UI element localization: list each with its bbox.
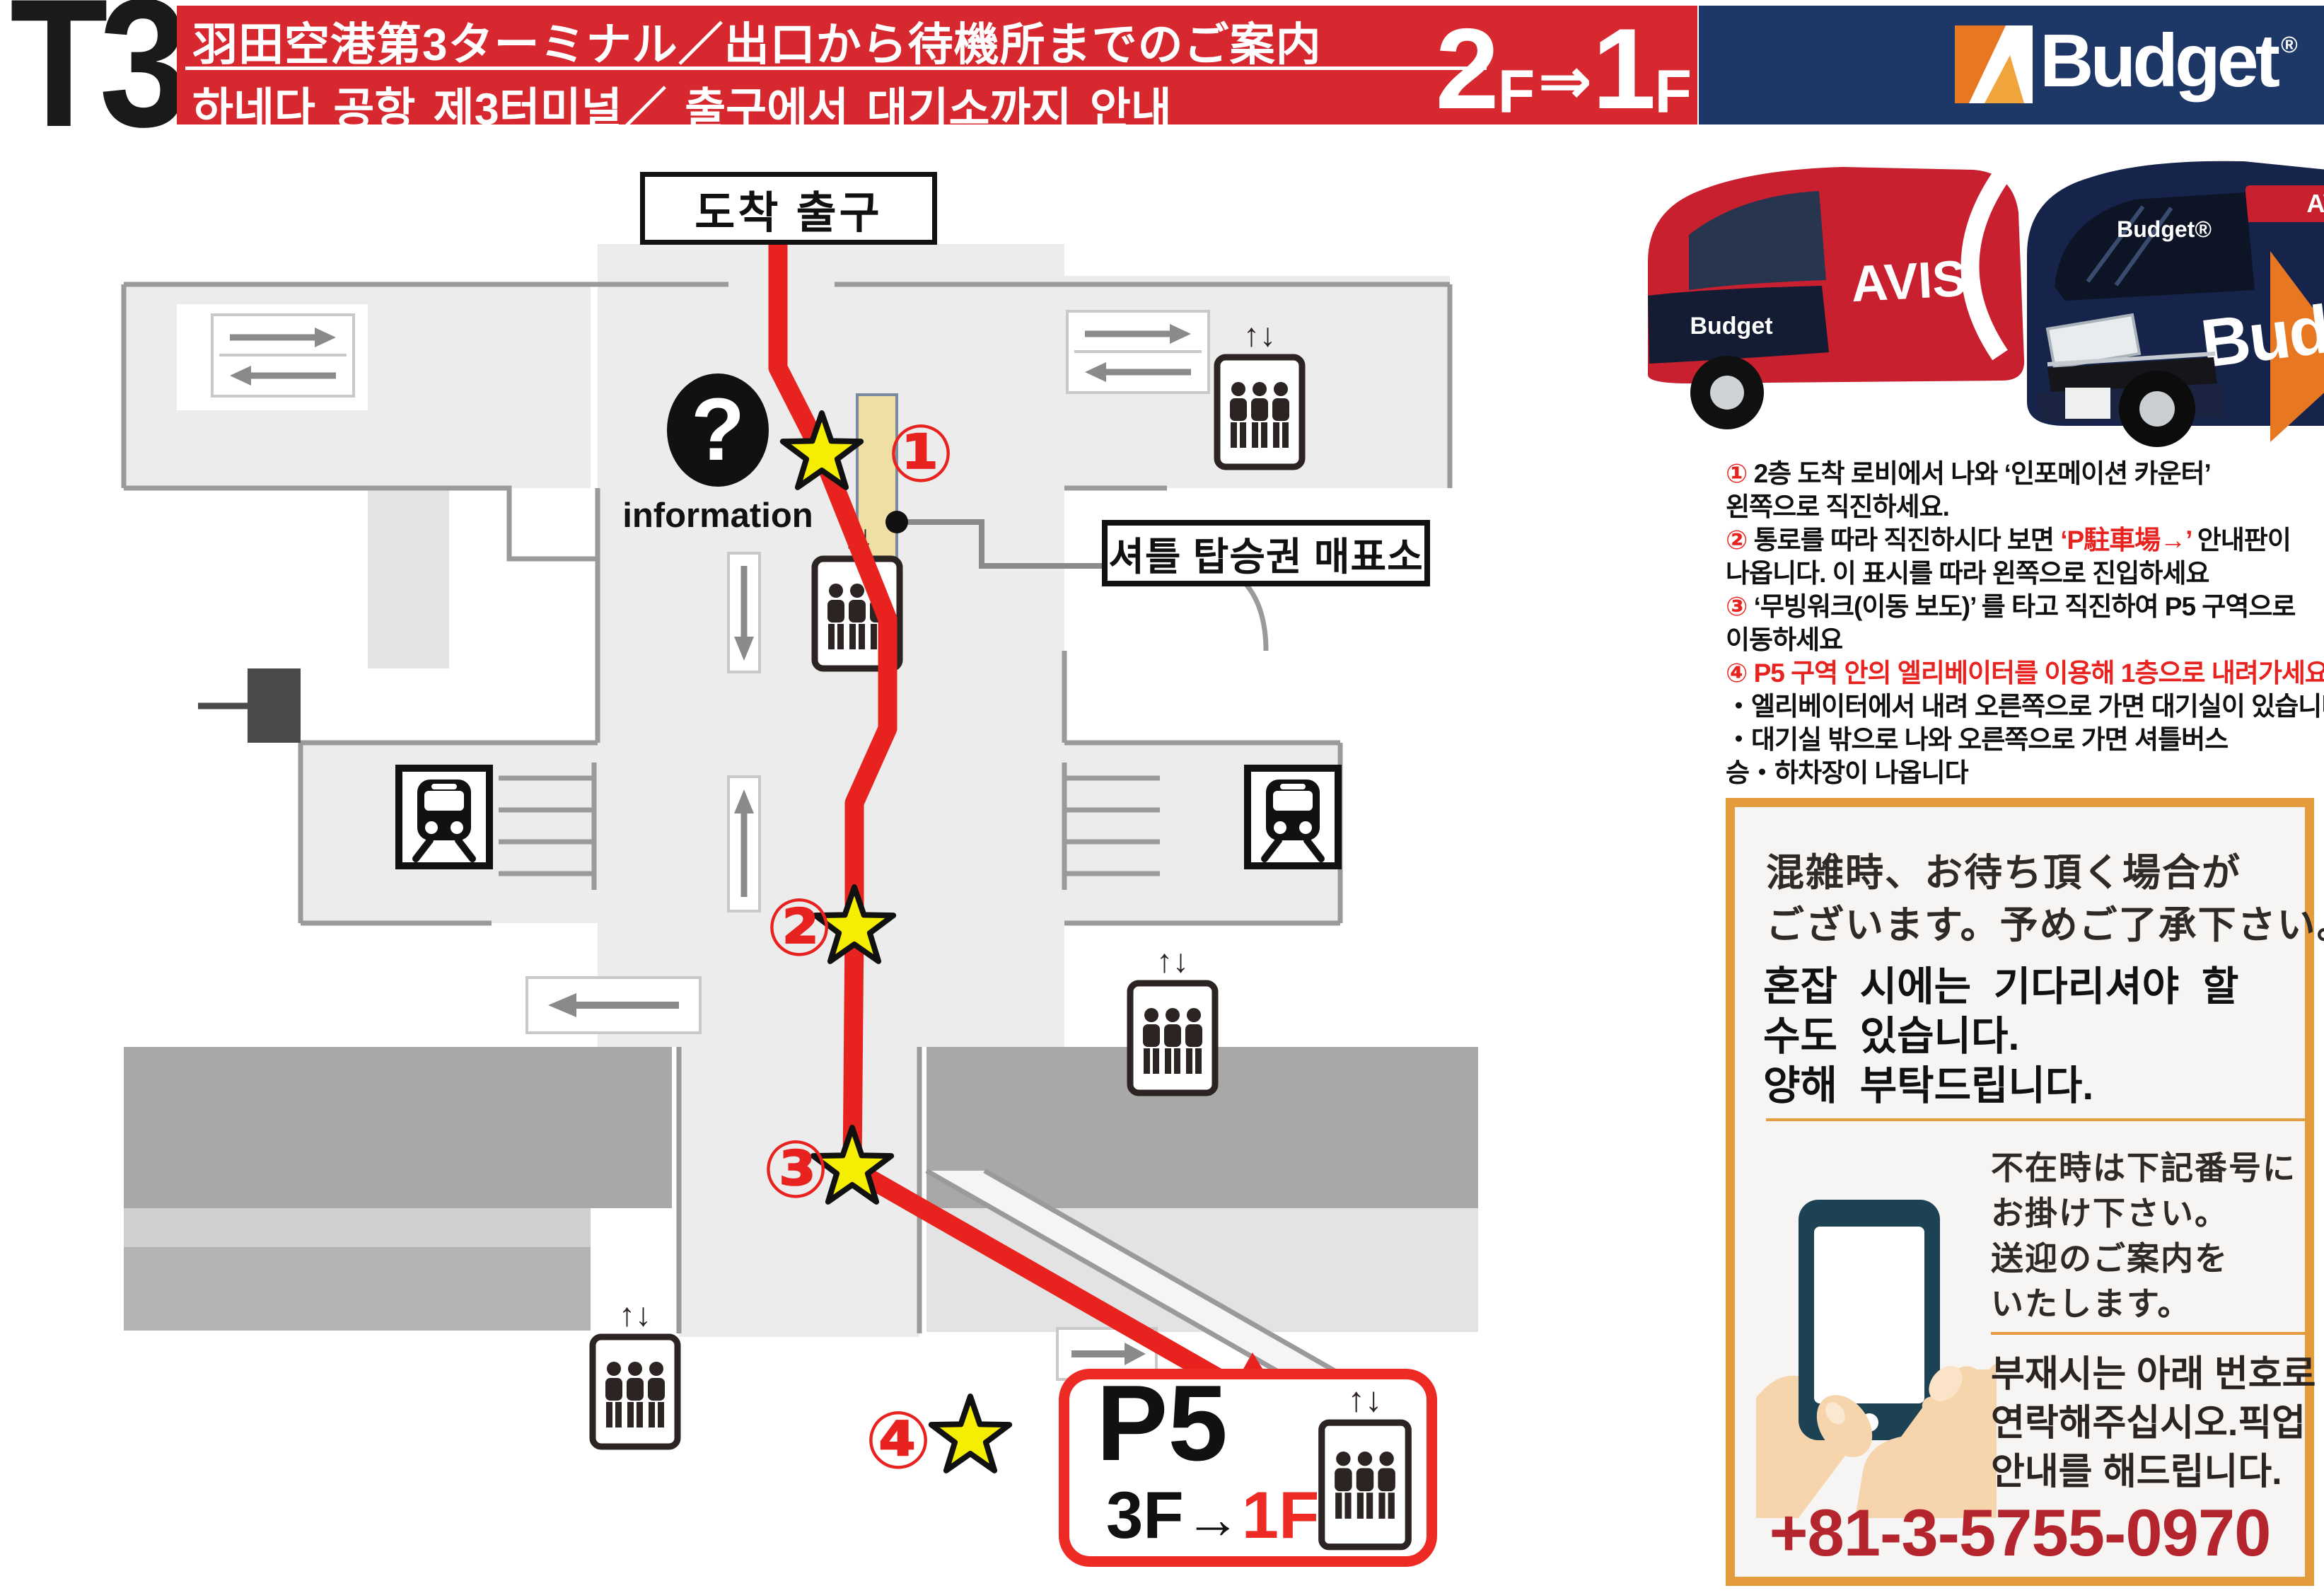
guide-poster: T3 羽田空港第3ターミナル／出口から待機所までのご案内 하네다 공항 제3터미… (0, 0, 2324, 1593)
contact-ja-line-4: いたします。 (1991, 1281, 2296, 1326)
step-2-text-b: 안내판이 (2191, 526, 2290, 555)
budget-van-glass-label: Budget® (2117, 216, 2212, 242)
shuttle-ticket-office-text: 셔틀 탑승권 매표소 (1108, 525, 1423, 581)
instruction-note-2: ・대기실 밖으로 나와 오른쪽으로 가면 셔틀버스 (1726, 723, 2320, 756)
step-3-text: ‘무빙워크(이동 보도)’ 를 타고 직진하여 P5 구역으로 (1747, 592, 2295, 621)
elevator-arrows-icon: ↑↓ (619, 1296, 651, 1333)
elevator-arrows-icon: ↑↓ (1156, 942, 1189, 979)
contact-ja-line-2: お掛け下さい。 (1991, 1191, 2296, 1236)
question-mark-icon: ? (691, 381, 745, 479)
elevator-arrows-icon: ↑↓ (1243, 316, 1276, 353)
divider (1766, 1118, 2308, 1121)
elevator-icon: ↑↓ (593, 1296, 678, 1447)
information-label: information (622, 497, 813, 535)
title-banner: 羽田空港第3ターミナル／出口から待機所までのご案内 하네다 공항 제3터미널／ … (177, 6, 1697, 124)
brand-name-text: Budget (2040, 19, 2277, 103)
step-4-number: ④ (1726, 659, 1747, 688)
instruction-note-2b: 승・하차장이 나옵니다 (1726, 756, 2320, 789)
brand-banner: Budget® (1699, 6, 2324, 124)
notice-japanese-2: ございます。予めご了承下さい。 (1766, 893, 2324, 949)
p5-floor-arrow-icon: → (1185, 1487, 1241, 1551)
instruction-step-1b: 왼쪽으로 직진하세요. (1726, 490, 2320, 523)
left-arrow-sign (527, 978, 700, 1033)
divider (1991, 1332, 2309, 1335)
floor-to-number: 1 (1592, 16, 1656, 122)
arrival-exit-text: 도착 출구 (695, 177, 882, 241)
instruction-step-1: ① 2층 도착 로비에서 나와 ‘인포메이션 카운터’ (1726, 457, 2320, 490)
contact-ja-line-1: 不在時は下記番号に (1991, 1145, 2296, 1191)
floor-from-number: 2 (1436, 16, 1499, 122)
down-arrow-sign (728, 553, 760, 672)
star-icon (931, 1396, 1009, 1471)
step-3-number: ③ (1726, 592, 1747, 621)
elevator-icon: ↑↓ (1130, 942, 1215, 1093)
avis-van-label: AVIS (1849, 250, 1968, 313)
two-way-arrow-sign (1067, 311, 1209, 393)
contact-ko-line-3: 안내를 해드립니다. (1991, 1448, 2316, 1497)
budget-van: AVIS Budget® Budget (2027, 161, 2324, 447)
step-marker-2: ② (766, 884, 833, 972)
brand-name: Budget® (2040, 18, 2298, 104)
contact-korean: 부재시는 아래 번호로 연락해주십시오.픽업 안내를 해드립니다. (1991, 1350, 2316, 1497)
instruction-step-3b: 이동하세요 (1726, 623, 2320, 656)
elevator-arrows-icon: ↑↓ (1348, 1382, 1383, 1419)
floor-arrow-icon: ⇒ (1538, 52, 1592, 112)
monorail-icon (399, 768, 489, 866)
instruction-step-2: ② 통로를 따라 직진하시다 보면 ‘P駐車場→’ 안내판이 (1726, 523, 2320, 557)
p5-destination-box: P5 3F → 1F ↑↓ (1059, 1369, 1437, 1567)
notice-box: 混雑時、お待ち頂く場合が ございます。予めご了承下さい。 혼잡 시에는 기다리셔… (1726, 798, 2314, 1586)
phone-hand-illustration (1756, 1193, 1997, 1518)
step-2-parking-sign: ‘P駐車場→’ (2060, 526, 2191, 555)
step-1-text: 2층 도착 로비에서 나와 ‘인포메이션 카운터’ (1747, 459, 2211, 488)
avis-van-front-label: Budget (1690, 313, 1772, 340)
instruction-note-1: ・엘리베이터에서 내려 오른쪽으로 가면 대기실이 있습니다 (1726, 690, 2320, 723)
step-2-text-a: 통로를 따라 직진하시다 보면 (1747, 526, 2060, 555)
elevator-icon: ↑↓ (1312, 1382, 1418, 1556)
title-korean: 하네다 공항 제3터미널／ 출구에서 대기소까지 안내 (192, 74, 1172, 138)
wall-fixture (198, 668, 301, 743)
registered-mark: ® (2281, 32, 2298, 57)
terminal-code: T3 (10, 0, 180, 154)
step-2-number: ② (1726, 526, 1747, 555)
p5-title: P5 (1096, 1369, 1228, 1477)
step-marker-1: ① (888, 410, 955, 498)
p5-floor-from: 3F (1106, 1477, 1184, 1553)
title-japanese: 羽田空港第3ターミナル／出口から待機所までのご案内 (192, 8, 1322, 74)
two-way-arrow-sign (212, 315, 354, 396)
arrival-exit-label: 도착 출구 (640, 172, 937, 245)
up-arrow-sign (728, 777, 760, 911)
p5-floor-to: 1F (1242, 1477, 1320, 1553)
instruction-step-4: ④ P5 구역 안의 엘리베이터를 이용해 1층으로 내려가세요 (1726, 656, 2320, 690)
title-underline (185, 66, 1487, 70)
avis-van: AVIS Budget (1648, 167, 2024, 429)
notice-korean-3: 양해 부탁드립니다. (1763, 1053, 2093, 1111)
contact-ko-line-1: 부재시는 아래 번호로 (1991, 1350, 2316, 1399)
step-marker-3: ③ (762, 1125, 830, 1214)
floor-from-letter: F (1498, 64, 1535, 120)
floor-to-letter: F (1654, 64, 1692, 120)
budget-logo-icon (1955, 25, 2033, 103)
step-marker-4: ④ (865, 1396, 932, 1485)
shuttle-vans-photo: AVIS Budget AVIS Budget® Budget (1605, 120, 2324, 460)
phone-number: +81-3-5755-0970 (1735, 1495, 2305, 1571)
budget-van-top-label: AVIS (2306, 189, 2324, 218)
step-4-text: P5 구역 안의 엘리베이터를 이용해 1층으로 내려가세요 (1747, 659, 2324, 688)
instructions-list: ① 2층 도착 로비에서 나와 ‘인포메이션 카운터’ 왼쪽으로 직진하세요. … (1726, 457, 2320, 789)
contact-ko-line-2: 연락해주십시오.픽업 (1991, 1399, 2316, 1448)
floor-indicator: 2 F ⇒ 1 F (1436, 16, 1693, 122)
instruction-step-3: ③ ‘무빙워크(이동 보도)’ 를 타고 직진하여 P5 구역으로 (1726, 590, 2320, 623)
shuttle-ticket-office-label: 셔틀 탑승권 매표소 (1102, 520, 1430, 586)
step-1-number: ① (1726, 459, 1747, 488)
train-icon (1248, 768, 1338, 866)
contact-japanese: 不在時は下記番号に お掛け下さい。 送迎のご案内を いたします。 (1991, 1145, 2296, 1326)
contact-ja-line-3: 送迎のご案内を (1991, 1236, 2296, 1281)
instruction-step-2b: 나옵니다. 이 표시를 따라 왼쪽으로 진입하세요 (1726, 557, 2320, 590)
p5-floor-change: 3F → 1F (1106, 1477, 1319, 1553)
notice-japanese-1: 混雑時、お待ち頂く場合が (1766, 841, 2241, 897)
